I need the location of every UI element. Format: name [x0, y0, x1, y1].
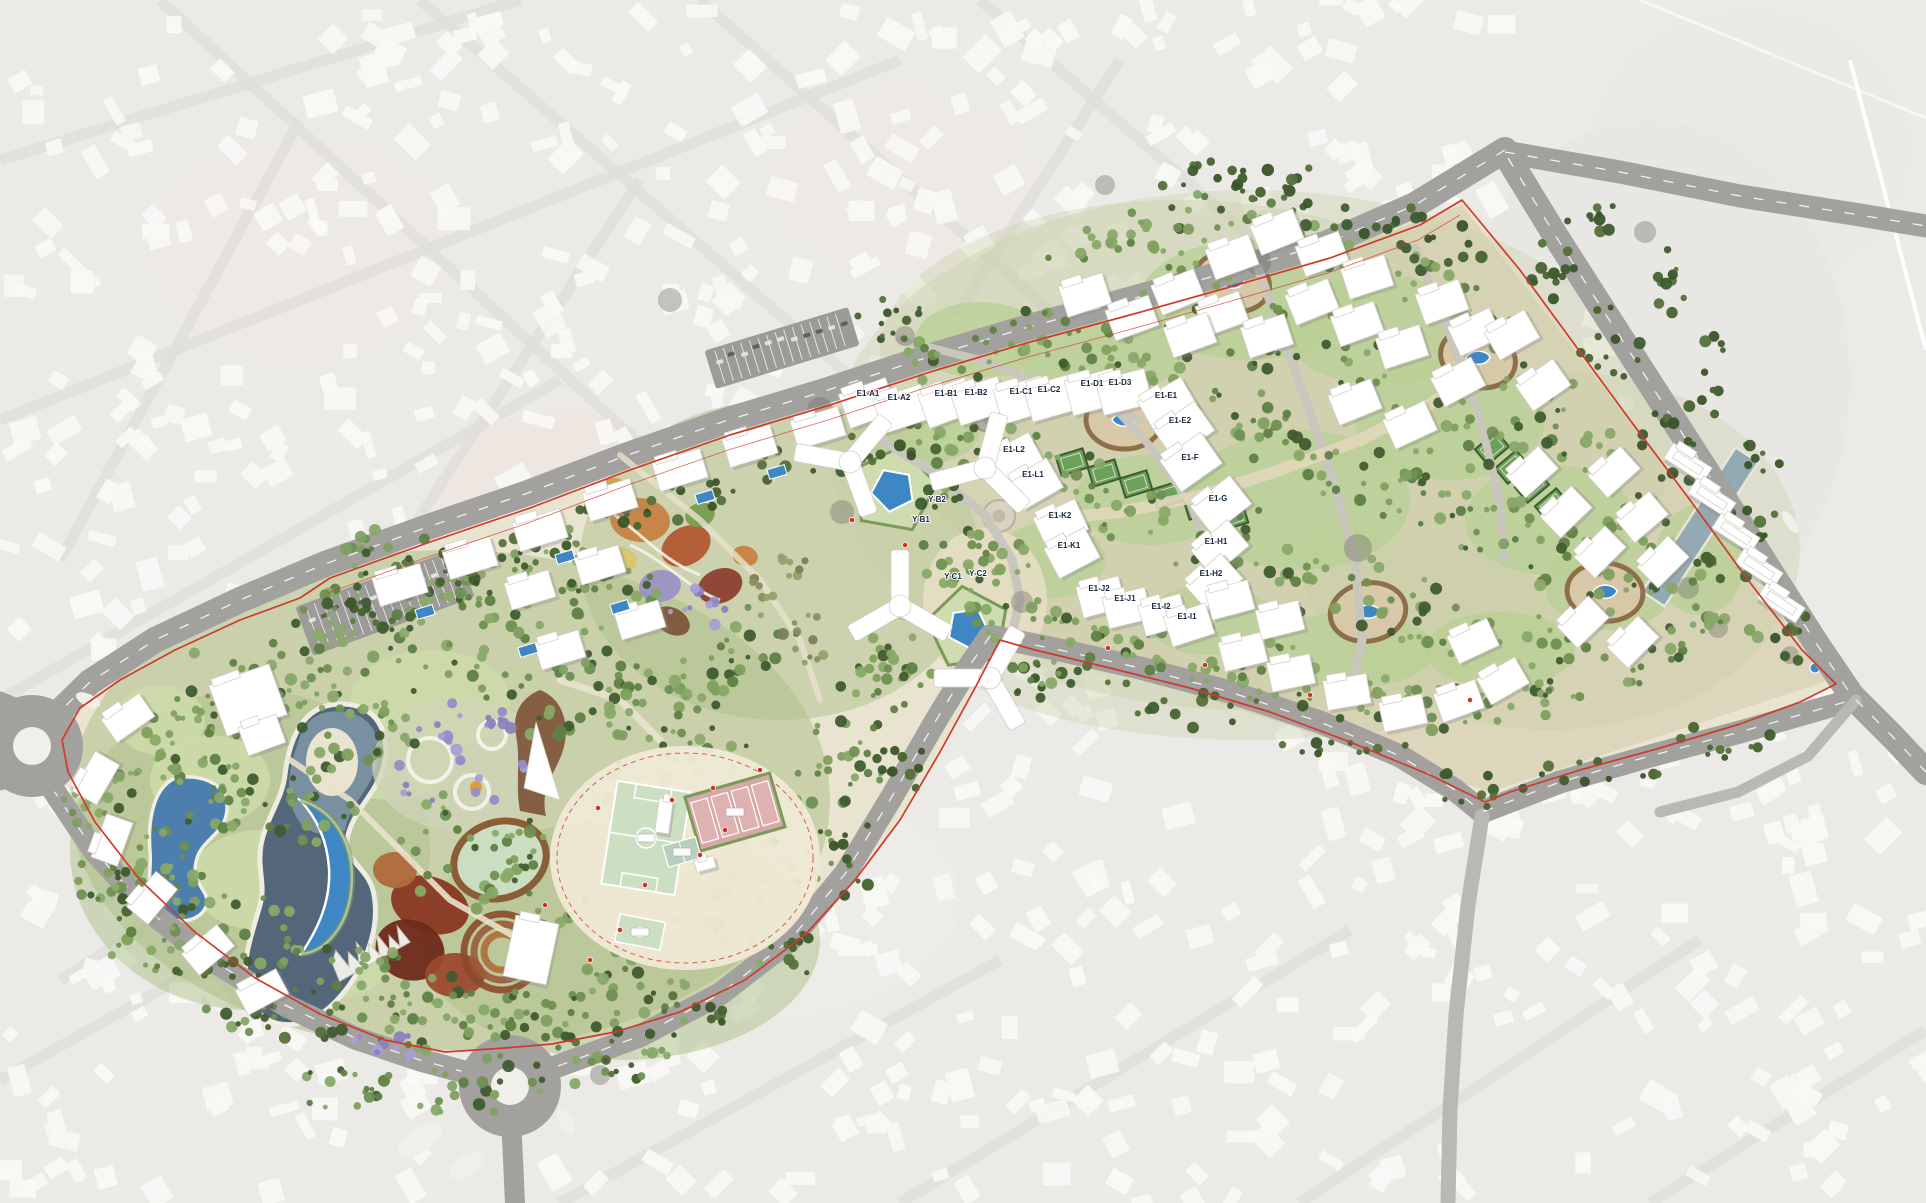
plot-label-Y-B1: Y-B1: [912, 515, 930, 524]
plot-label-E1-L1: E1-L1: [1022, 470, 1044, 479]
plot-label-E1-D1: E1-D1: [1081, 379, 1104, 388]
plot-label-E1-E1: E1-E1: [1155, 391, 1178, 400]
plot-label-E1-C2: E1-C2: [1038, 385, 1061, 394]
plot-label-E1-K1: E1-K1: [1058, 541, 1081, 550]
plot-label-Y-C1: Y-C1: [944, 572, 962, 581]
plot-label-Y-B2: Y-B2: [928, 495, 946, 504]
plot-label-E1-H1: E1-H1: [1205, 537, 1228, 546]
plot-label-E1-J2: E1-J2: [1088, 584, 1110, 593]
plot-label-E1-K2: E1-K2: [1049, 511, 1072, 520]
masterplan-svg: E1-A1E1-A2E1-B1E1-B2E1-C1E1-C2E1-D1E1-D3…: [0, 0, 1926, 1203]
plot-label-E1-A2: E1-A2: [888, 393, 911, 402]
plot-label-E1-A1: E1-A1: [857, 389, 880, 398]
masterplan-map: E1-A1E1-A2E1-B1E1-B2E1-C1E1-C2E1-D1E1-D3…: [0, 0, 1926, 1203]
plot-label-E1-H2: E1-H2: [1200, 569, 1223, 578]
plot-label-E1-I1: E1-I1: [1177, 612, 1197, 621]
plot-label-E1-L2: E1-L2: [1003, 445, 1025, 454]
plot-label-E1-D3: E1-D3: [1109, 378, 1132, 387]
plot-label-E1-C1: E1-C1: [1010, 387, 1033, 396]
plot-label-E1-G: E1-G: [1209, 494, 1228, 503]
plot-label-E1-I2: E1-I2: [1151, 602, 1171, 611]
plot-label-E1-E2: E1-E2: [1169, 416, 1192, 425]
plot-label-E1-F: E1-F: [1181, 453, 1198, 462]
plot-label-E1-B1: E1-B1: [935, 389, 958, 398]
plot-label-Y-C2: Y-C2: [969, 569, 987, 578]
plot-label-E1-B2: E1-B2: [965, 388, 988, 397]
plot-label-E1-J1: E1-J1: [1114, 594, 1136, 603]
